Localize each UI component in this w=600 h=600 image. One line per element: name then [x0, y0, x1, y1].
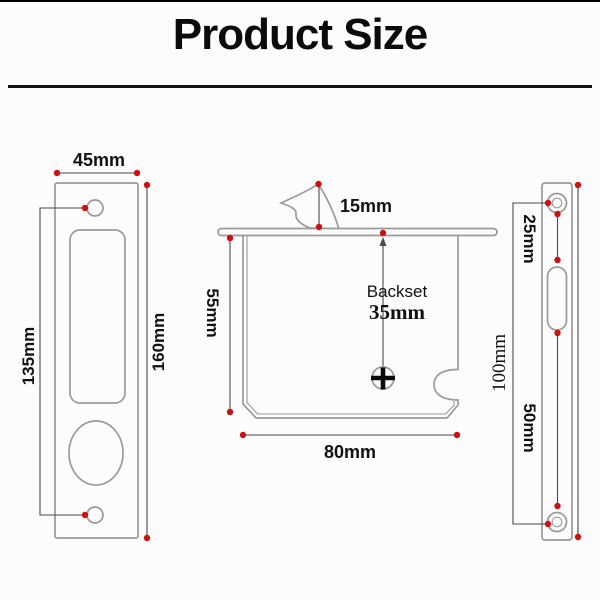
lock-body	[218, 184, 497, 418]
strike-bottom-screw-inner	[552, 517, 562, 527]
dim-label-100mm: 100mm	[489, 334, 510, 392]
dim-faceplate-screws: 135mm	[19, 205, 88, 518]
dim-label-135mm: 135mm	[19, 327, 38, 386]
dim-label-50mm: 50mm	[520, 403, 539, 452]
lock-body-inner-wall	[247, 236, 454, 414]
dim-label-25mm: 25mm	[520, 214, 539, 263]
faceplate-top-screw-hole	[87, 200, 103, 216]
dim-backset: Backset 35mm	[367, 230, 428, 366]
dim-label-55mm: 55mm	[203, 288, 222, 337]
faceplate-bottom-screw-hole	[87, 507, 103, 523]
lock-body-outline	[243, 236, 458, 418]
left-faceplate	[55, 183, 138, 538]
hook-bolt	[281, 184, 339, 229]
dim-lock-width: 80mm	[240, 432, 460, 462]
dim-lock-height: 55mm	[203, 235, 233, 415]
dim-strike-upper: 25mm	[520, 211, 561, 264]
lock-fore-end-bar	[218, 229, 497, 236]
dim-strike-lower: 50mm	[520, 330, 561, 509]
size-diagram: 45mm 135mm 160mm	[0, 0, 600, 600]
faceplate-slot	[70, 230, 125, 403]
dim-label-45mm: 45mm	[73, 150, 125, 170]
dim-faceplate-height: 160mm	[144, 182, 168, 541]
backset-caption: Backset	[367, 282, 428, 301]
faceplate-knob-hole	[69, 421, 123, 485]
dim-strike-overall	[575, 182, 581, 540]
dim-label-35mm: 35mm	[369, 300, 425, 324]
strike-slot	[548, 267, 567, 330]
dim-label-80mm: 80mm	[324, 442, 376, 462]
dim-label-160mm: 160mm	[149, 313, 168, 372]
dim-label-15mm: 15mm	[340, 196, 392, 216]
strike-top-screw-inner	[552, 198, 562, 208]
product-size-page: Product Size 45mm 135mm 160mm	[0, 0, 600, 600]
dim-faceplate-width: 45mm	[54, 150, 140, 176]
